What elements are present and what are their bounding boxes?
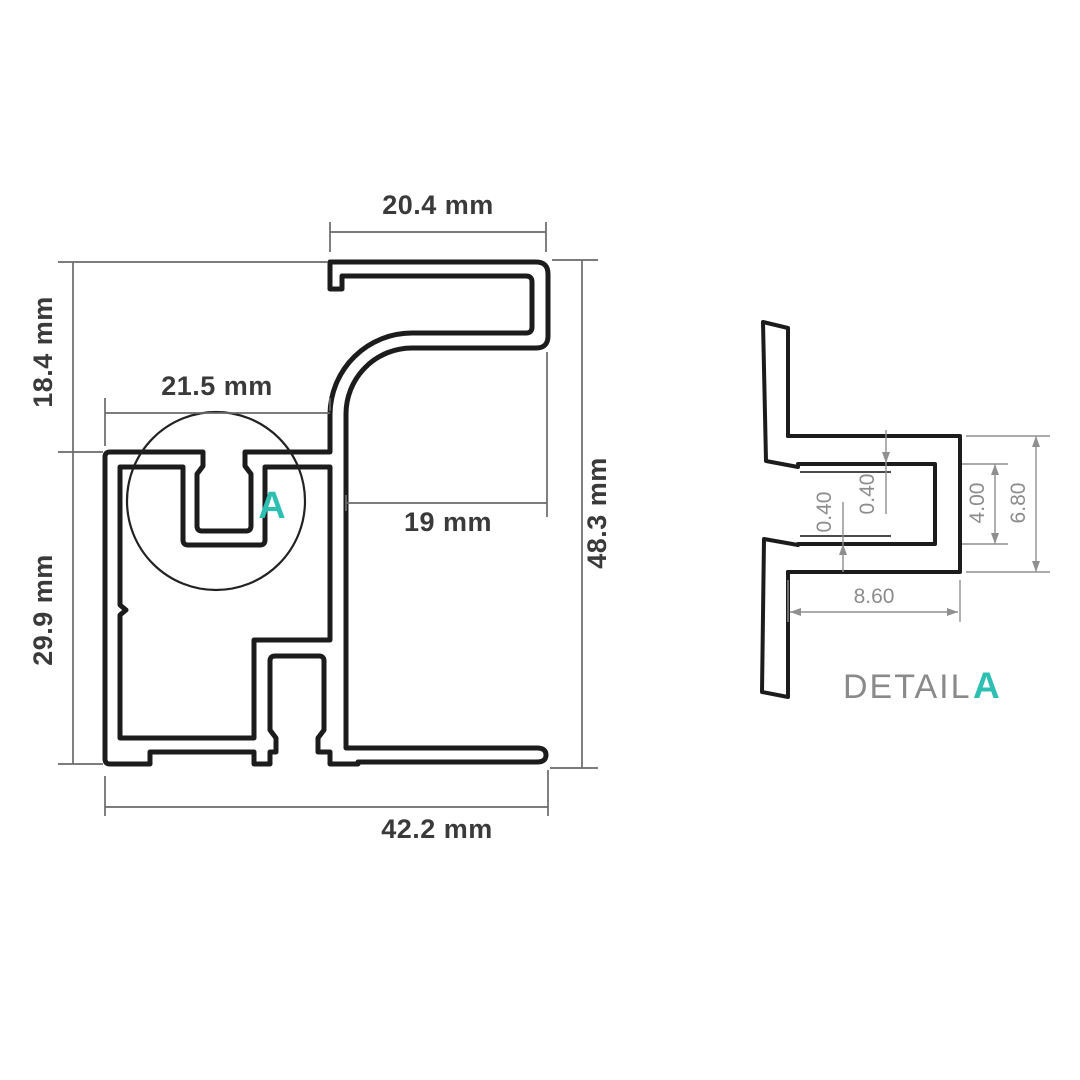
dim-overall-width-label: 42.2 mm: [381, 814, 493, 844]
dim-upper-height-label: 18.4 mm: [28, 296, 58, 408]
dim-lower-height: 29.9 mm: [28, 452, 103, 764]
main-view: A 20.4 mm 18.4 mm 29.9 mm 21.5 mm: [28, 190, 612, 844]
detail-dim-slot-overall-label: 6.80: [1007, 483, 1030, 524]
detail-dim-slot-opening-label: 4.00: [966, 483, 989, 524]
detail-dim-top-lip-label: 0.40: [856, 474, 879, 515]
dim-upper-height: 18.4 mm: [28, 262, 328, 452]
dim-overall-height: 48.3 mm: [550, 260, 612, 768]
detail-upper-flange: [763, 322, 798, 467]
dim-top-width-label: 20.4 mm: [382, 190, 494, 220]
dim-lower-height-label: 29.9 mm: [28, 554, 58, 666]
dim-overall-height-label: 48.3 mm: [582, 457, 612, 569]
detail-caption-text: DETAIL: [843, 668, 972, 706]
detail-dim-slot-opening: 4.00: [962, 464, 1008, 544]
detail-dim-bottom-lip-label: 0.40: [813, 492, 836, 533]
dim-channel-width: 21.5 mm: [105, 371, 330, 446]
dim-hook-depth-label: 19 mm: [404, 507, 492, 537]
detail-caption-letter: A: [973, 665, 1000, 706]
detail-dim-slot-depth-label: 8.60: [854, 585, 895, 608]
technical-drawing: A 20.4 mm 18.4 mm 29.9 mm 21.5 mm: [0, 0, 1080, 1080]
detail-marker-label: A: [258, 485, 285, 527]
detail-dim-bottom-lip: 0.40: [813, 492, 847, 572]
detail-caption: DETAIL A: [843, 665, 1000, 706]
dim-top-width: 20.4 mm: [330, 190, 546, 252]
detail-view: 0.40 0.40 4.00 6.80: [762, 322, 1050, 706]
detail-dim-slot-depth: 8.60: [788, 580, 960, 622]
dim-channel-width-label: 21.5 mm: [161, 371, 273, 401]
detail-lower-flange: [762, 539, 798, 697]
drawing-canvas: A 20.4 mm 18.4 mm 29.9 mm 21.5 mm: [0, 0, 1080, 1080]
dim-hook-depth: 19 mm: [346, 352, 547, 537]
dim-overall-width: 42.2 mm: [105, 770, 548, 844]
